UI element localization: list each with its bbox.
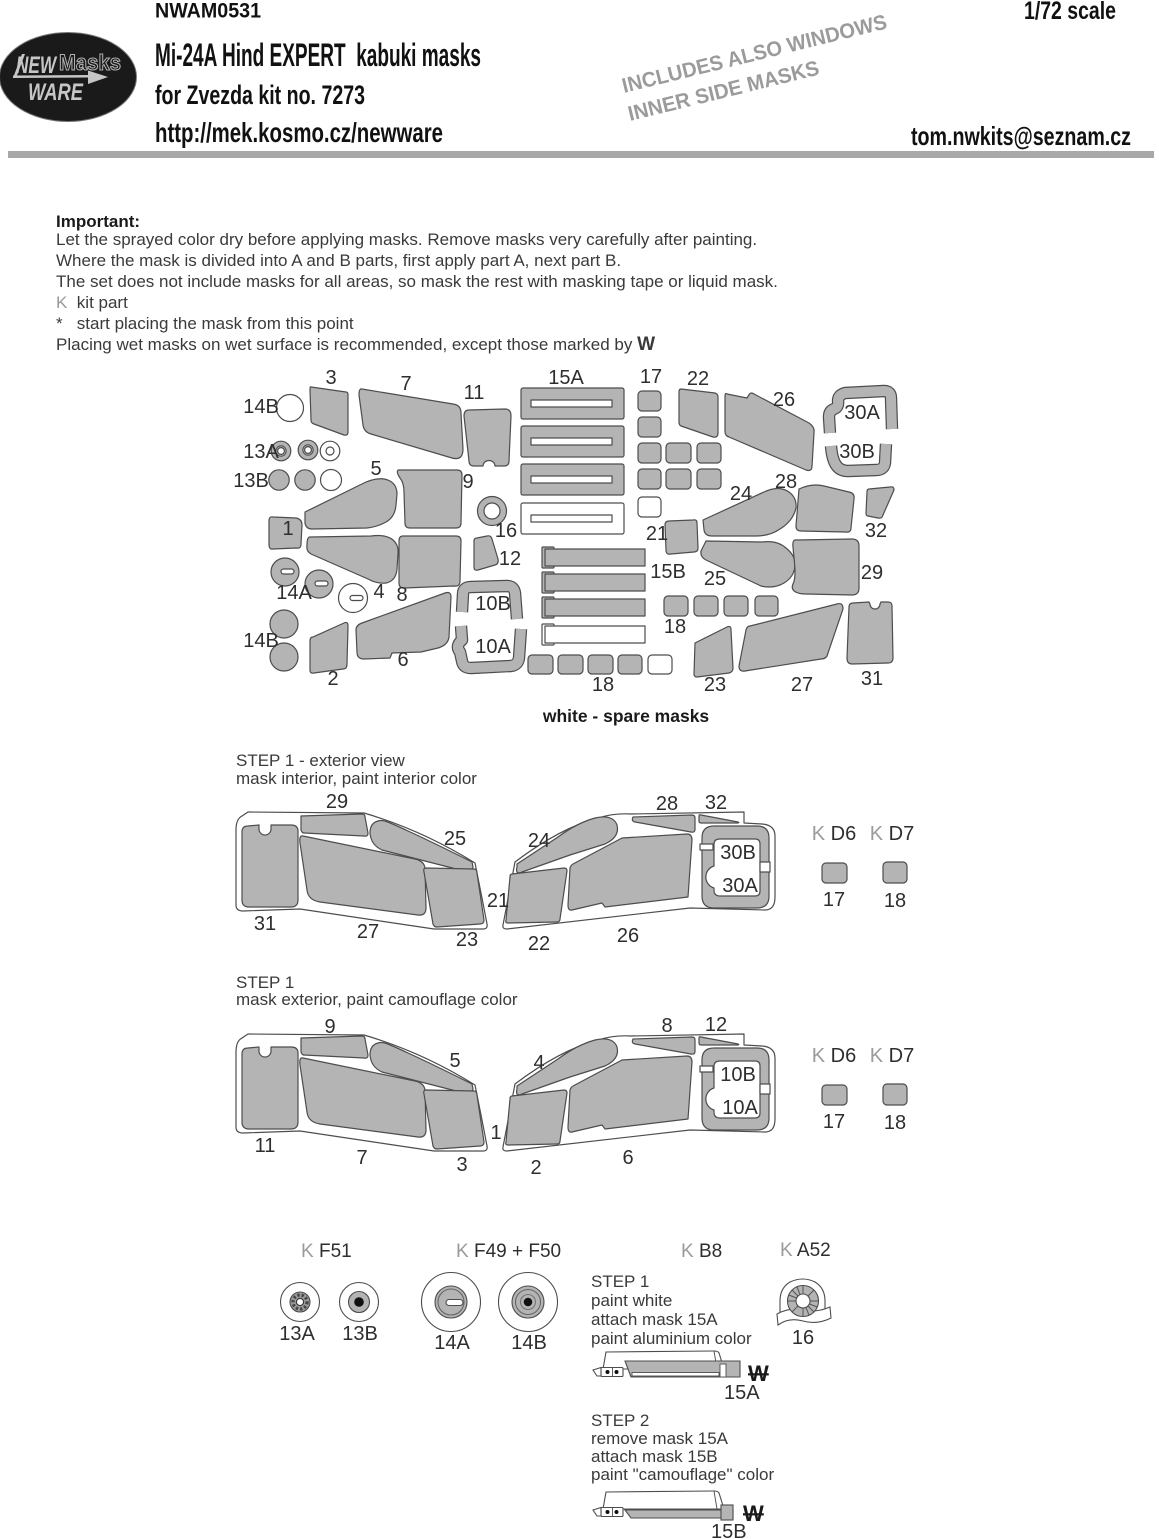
svg-text:10A: 10A: [722, 1097, 758, 1119]
svg-text:4: 4: [373, 581, 384, 603]
svg-text:paint aluminium color: paint aluminium color: [591, 1329, 752, 1348]
svg-text:25: 25: [704, 568, 726, 590]
svg-text:18: 18: [664, 616, 686, 638]
svg-text:http://mek.kosmo.cz/newware: http://mek.kosmo.cz/newware: [155, 117, 443, 148]
svg-text:13A: 13A: [243, 441, 279, 463]
svg-text:30B: 30B: [839, 441, 875, 463]
svg-text:K A52: K A52: [780, 1240, 831, 1261]
svg-text:32: 32: [705, 792, 727, 814]
svg-text:paint white: paint white: [591, 1291, 672, 1310]
svg-text:13A: 13A: [279, 1323, 315, 1345]
svg-text:4: 4: [533, 1052, 544, 1074]
svg-text:1/72 scale: 1/72 scale: [1024, 0, 1116, 25]
svg-text:1: 1: [282, 518, 293, 540]
svg-text:21: 21: [487, 890, 509, 912]
svg-text:29: 29: [326, 791, 348, 813]
svg-text:9: 9: [462, 471, 473, 493]
svg-text:27: 27: [791, 674, 813, 696]
svg-text:15A: 15A: [724, 1382, 760, 1404]
svg-text:26: 26: [773, 389, 795, 411]
svg-text:28: 28: [775, 471, 797, 493]
svg-text:22: 22: [528, 933, 550, 955]
svg-text:15B: 15B: [711, 1521, 747, 1539]
svg-text:30A: 30A: [722, 875, 758, 897]
svg-text:30B: 30B: [720, 842, 756, 864]
svg-text:22: 22: [687, 368, 709, 390]
svg-text:10A: 10A: [475, 636, 511, 658]
svg-text:16: 16: [792, 1327, 814, 1349]
svg-text:21: 21: [646, 523, 668, 545]
svg-text:mask exterior, paint camouflag: mask exterior, paint camouflage color: [236, 990, 518, 1009]
svg-text:13B: 13B: [342, 1323, 378, 1345]
svg-text:3: 3: [456, 1154, 467, 1176]
svg-text:24: 24: [528, 830, 550, 852]
svg-text:7: 7: [356, 1147, 367, 1169]
svg-text:18: 18: [592, 674, 614, 696]
svg-text:6: 6: [397, 649, 408, 671]
svg-text:attach mask 15B: attach mask 15B: [591, 1447, 718, 1466]
svg-text:31: 31: [861, 668, 883, 690]
svg-text:3: 3: [325, 367, 336, 389]
svg-text:13B: 13B: [233, 470, 269, 492]
svg-text:paint "camouflage" color: paint "camouflage" color: [591, 1465, 774, 1484]
svg-text:27: 27: [357, 921, 379, 943]
svg-text:14B: 14B: [511, 1332, 547, 1354]
svg-text:remove mask 15A: remove mask 15A: [591, 1429, 729, 1448]
svg-text:for Zvezda kit no. 7273: for Zvezda kit no. 7273: [155, 80, 365, 110]
svg-text:Mi-24A Hind EXPERT kabuki mas: Mi-24A Hind EXPERT kabuki masks: [155, 37, 481, 73]
svg-text:31: 31: [254, 913, 276, 935]
svg-text:24: 24: [730, 483, 752, 505]
svg-text:8: 8: [661, 1015, 672, 1037]
svg-text:23: 23: [456, 929, 478, 951]
svg-text:WARE: WARE: [28, 79, 84, 106]
svg-text:14A: 14A: [434, 1332, 470, 1354]
svg-text:STEP 1 - exterior view: STEP 1 - exterior view: [236, 751, 406, 770]
svg-text:8: 8: [396, 584, 407, 606]
svg-text:15A: 15A: [548, 367, 584, 389]
svg-text:29: 29: [861, 562, 883, 584]
svg-text:25: 25: [444, 828, 466, 850]
svg-text:14B: 14B: [243, 396, 279, 418]
svg-text:10B: 10B: [720, 1064, 756, 1086]
svg-text:26: 26: [617, 925, 639, 947]
svg-text:2: 2: [327, 668, 338, 690]
svg-text:14B: 14B: [243, 630, 279, 652]
svg-text:16: 16: [495, 520, 517, 542]
svg-text:2: 2: [530, 1157, 541, 1179]
svg-text:10B: 10B: [475, 593, 511, 615]
svg-text:7: 7: [400, 373, 411, 395]
svg-text:white - spare masks: white - spare masks: [542, 706, 710, 726]
svg-text:17: 17: [640, 366, 662, 388]
svg-text:11: 11: [464, 382, 485, 404]
svg-text:K F51: K F51: [301, 1241, 352, 1262]
svg-text:12: 12: [499, 548, 521, 570]
svg-text:28: 28: [656, 793, 678, 815]
svg-text:30A: 30A: [844, 402, 880, 424]
svg-text:14A: 14A: [276, 582, 312, 604]
svg-text:tom.nwkits@seznam.cz: tom.nwkits@seznam.cz: [911, 121, 1131, 151]
svg-text:5: 5: [449, 1050, 460, 1072]
svg-text:NWAM0531: NWAM0531: [155, 0, 261, 23]
svg-text:12: 12: [705, 1014, 727, 1036]
svg-text:attach mask 15A: attach mask 15A: [591, 1310, 718, 1329]
svg-text:1: 1: [490, 1122, 501, 1144]
svg-text:5: 5: [370, 458, 381, 480]
svg-text:K B8: K B8: [681, 1241, 722, 1262]
svg-text:9: 9: [324, 1016, 335, 1038]
svg-text:mask interior, paint interior: mask interior, paint interior color: [236, 769, 477, 788]
svg-text:15B: 15B: [650, 561, 686, 583]
svg-text:23: 23: [704, 674, 726, 696]
svg-text:6: 6: [622, 1147, 633, 1169]
svg-text:STEP 1: STEP 1: [591, 1272, 649, 1291]
svg-text:K F49 + F50: K F49 + F50: [456, 1241, 561, 1262]
svg-text:11: 11: [255, 1135, 276, 1157]
svg-text:STEP 2: STEP 2: [591, 1411, 649, 1430]
svg-text:32: 32: [865, 520, 887, 542]
